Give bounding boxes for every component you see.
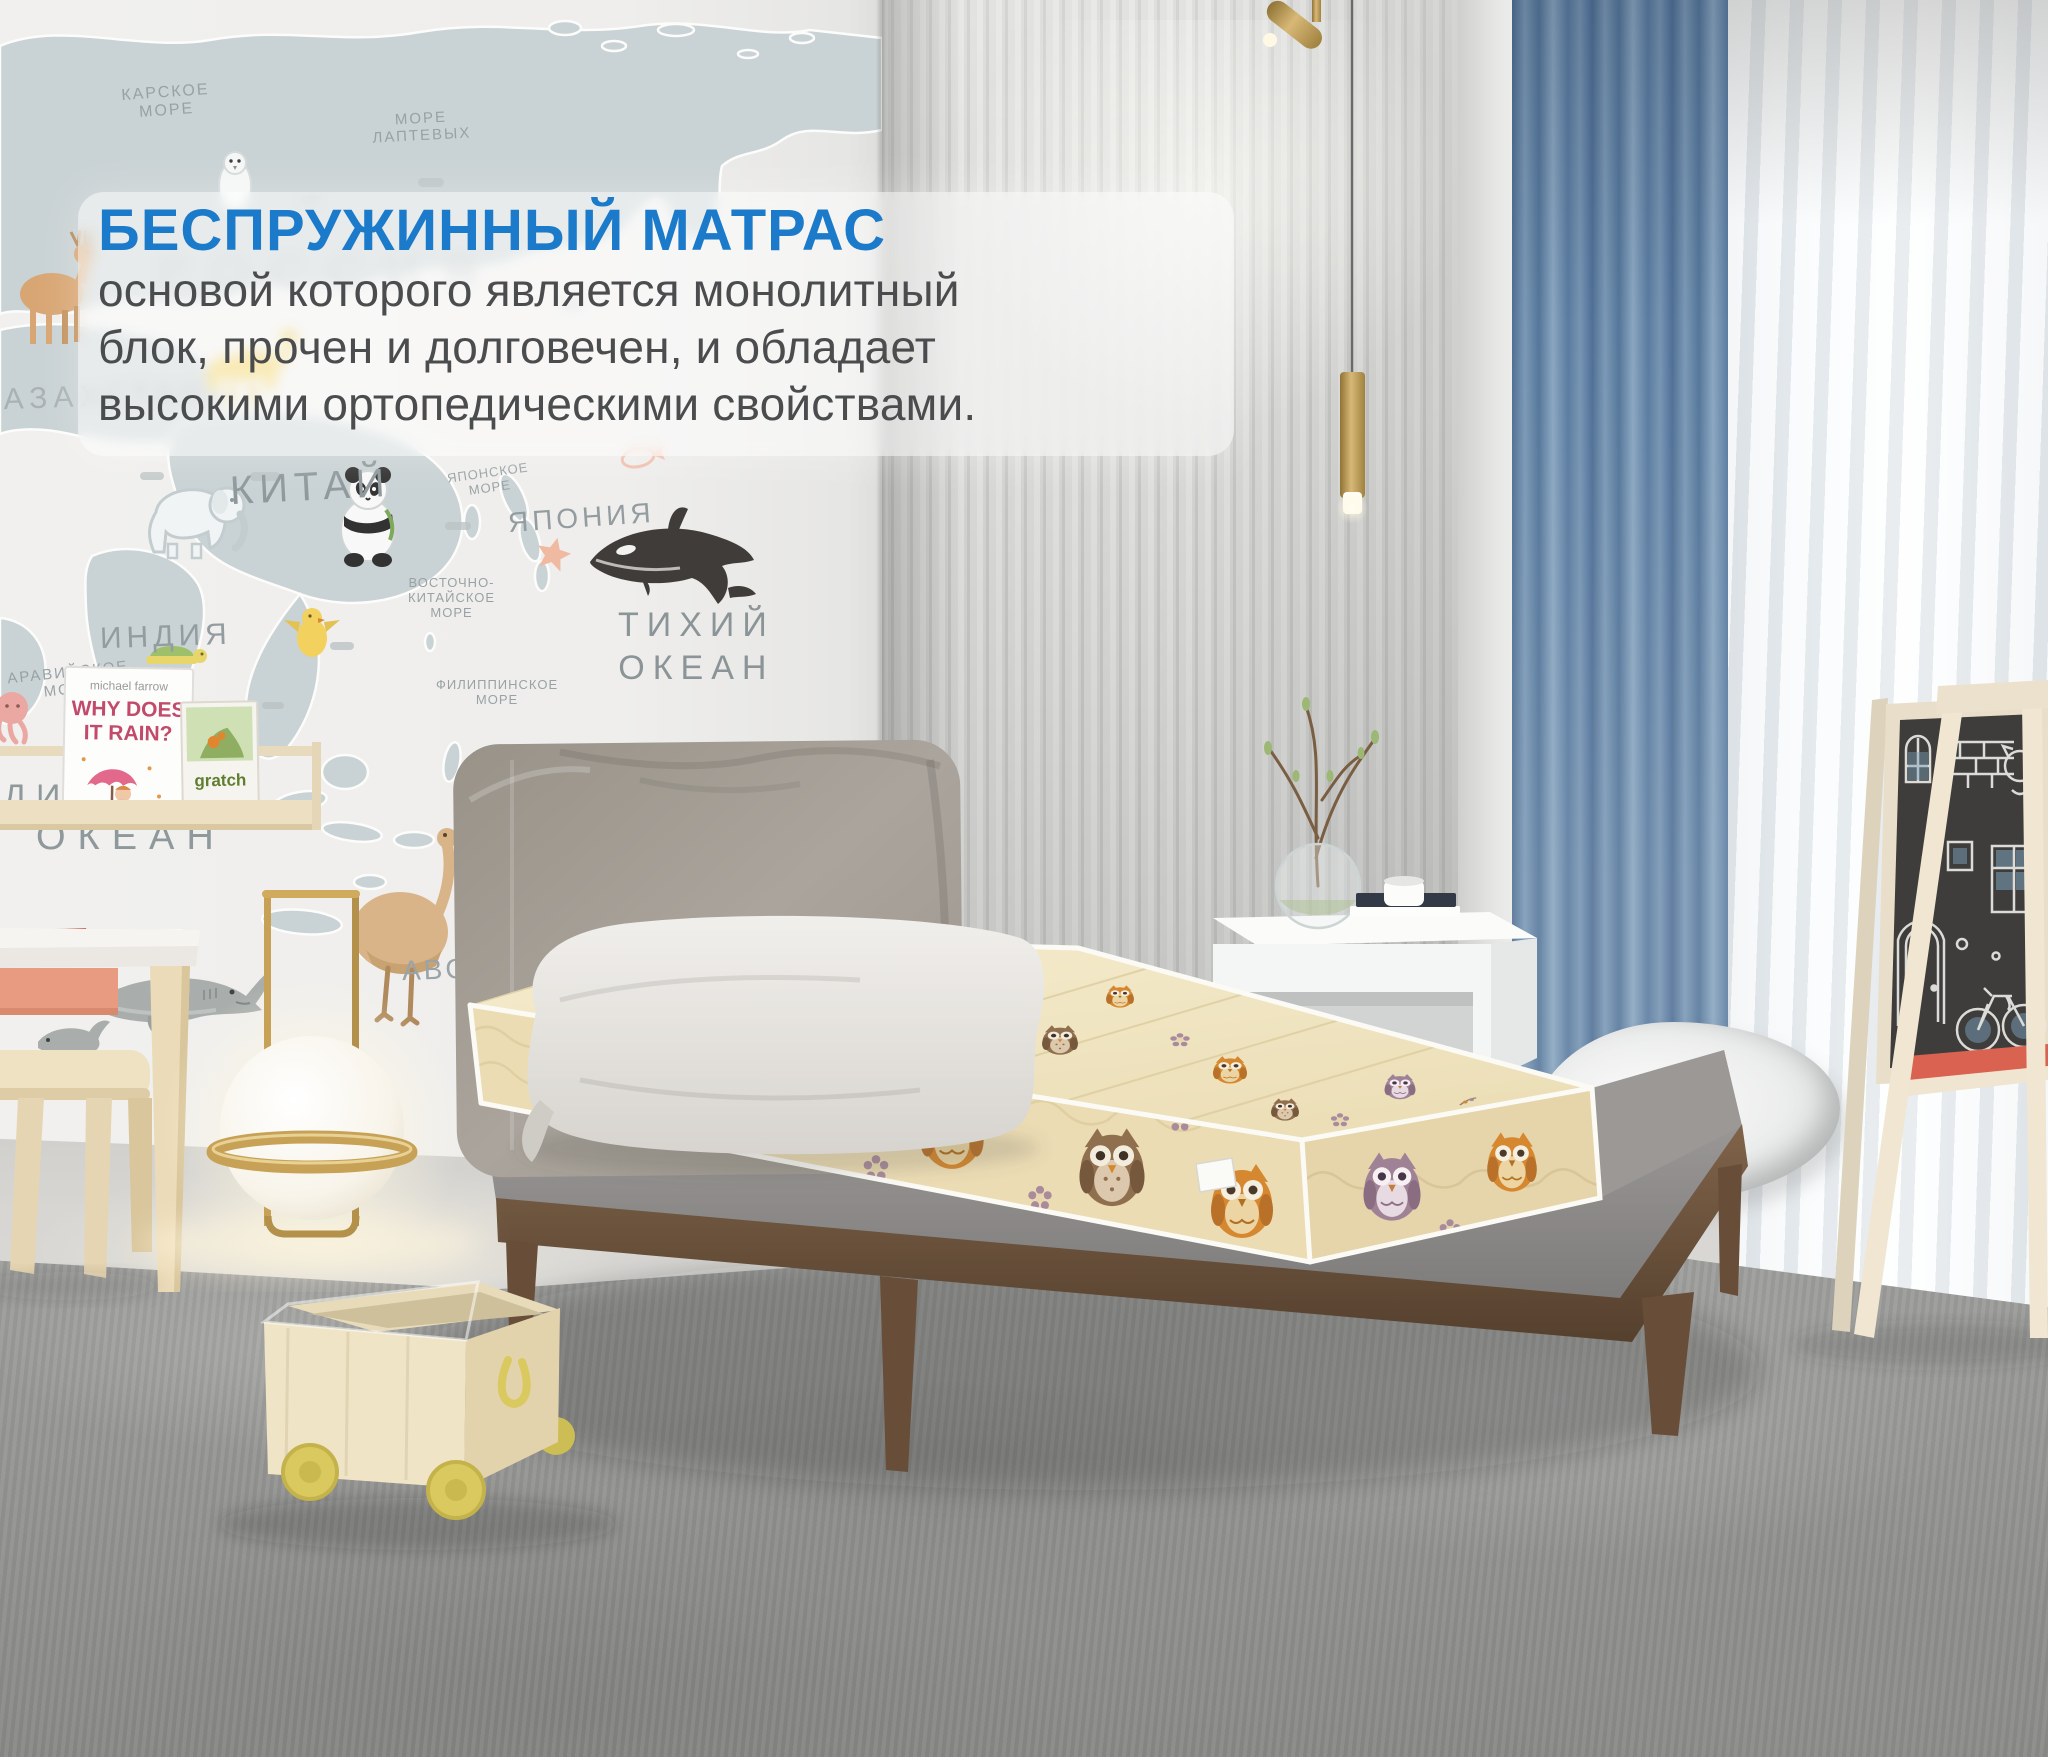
mattress-label-tag [1196,1158,1236,1192]
pendant-light-long [1336,0,1368,524]
desk-drawer [0,968,118,1014]
headline-springless-mattress: БЕСПРУЖИННЫЙ МАТРАС [98,200,1212,262]
svg-text:IT RAIN?: IT RAIN? [84,721,173,746]
toy-cart [218,1282,618,1550]
books-and-cup-on-nightstand [1350,876,1460,916]
wall-book-shelf: michael farrow WHY DOES IT RAIN? gratch [0,667,321,830]
description-line-2: блок, прочен и долговечен, и обладает [98,319,1212,376]
description-line-1: основой которого является монолитный [98,262,1212,319]
bed-pillow [520,916,1044,1174]
svg-text:WHY DOES: WHY DOES [71,697,185,722]
bed [400,739,2048,1490]
product-photo-children-bedroom: КАРСКОЕ МОРЕ МОРЕ ЛАПТЕВЫХ РОССИЯ КАЗАХС… [0,0,2048,1757]
marketing-text-card: БЕСПРУЖИННЫЙ МАТРАС основой которого явл… [78,192,1234,456]
svg-text:michael farrow: michael farrow [90,678,169,693]
ceiling-spot-lamp [1262,0,1326,53]
description-line-3: высокими ортопедическими свойствами. [98,376,1212,433]
kids-stool [0,1050,160,1300]
chalkboard-easel [1790,680,2048,1365]
svg-text:gratch: gratch [194,770,246,790]
